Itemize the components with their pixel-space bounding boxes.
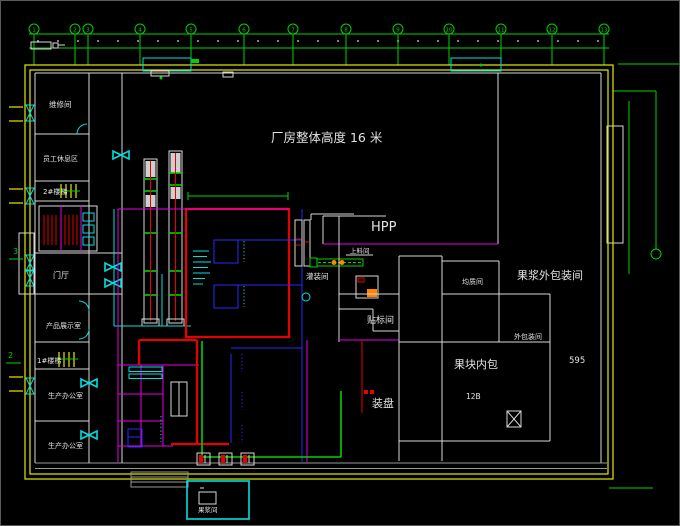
room-label-hpp: HPP xyxy=(371,220,397,235)
floor-plan-canvas: 1 2 3 4 5 6 7 8 9 10 11 12 13 xyxy=(1,1,680,526)
grid-bubble-label: 8 xyxy=(344,27,348,33)
grid-bubble-label: 10 xyxy=(446,27,453,33)
grid-bubble-label: 2 xyxy=(73,27,77,33)
drawing-title: 厂房整体高度 16 米 xyxy=(271,130,383,145)
process-line-bracket xyxy=(114,209,191,326)
text-labels: 厂房整体高度 16 米 HPP 维修间 员工休息区 2#楼梯 门厅 产品展示室 … xyxy=(37,99,585,514)
room-label-tray: 装盘 xyxy=(372,396,394,410)
grid-bubble-label: 5 xyxy=(189,27,193,33)
door-swings xyxy=(77,124,129,439)
hpp-zone-walls xyxy=(323,73,498,244)
grid-bubble-label: 11 xyxy=(498,27,505,33)
hall-partition-lines xyxy=(118,209,307,462)
grid-bubble-label: 6 xyxy=(242,27,246,33)
section-marker-3: 3 xyxy=(13,247,18,256)
section-marker-2: 2 xyxy=(8,351,13,360)
grid-bubble-label: 13 xyxy=(601,27,608,33)
grid-bubble-label: 1 xyxy=(32,27,36,33)
room-label-labeling: 贴标间 xyxy=(367,314,394,326)
room-label-feeding: 上料间 xyxy=(350,246,370,255)
grid-bubble-label: 7 xyxy=(291,27,295,33)
room-label-filling: 灌装间 xyxy=(306,271,329,281)
room-label-pulp-outer-pack: 果浆外包装间 xyxy=(517,268,583,282)
process-line-b xyxy=(167,151,184,326)
grid-bubbles: 1 2 3 4 5 6 7 8 9 10 11 12 13 xyxy=(29,24,609,34)
right-dimension-lines xyxy=(607,64,679,488)
room-label-stair1: 1#楼梯 xyxy=(37,356,61,365)
room-label-maintenance: 维修间 xyxy=(49,99,72,109)
room-label-product-display: 产品展示室 xyxy=(46,321,81,330)
grid-bubble-label: 9 xyxy=(396,27,400,33)
filling-line-machines xyxy=(295,214,378,301)
process-line-a xyxy=(142,159,159,326)
room-label-homogenize: 均质间 xyxy=(462,277,483,286)
cad-floor-plan-screenshot: 1 2 3 4 5 6 7 8 9 10 11 12 13 xyxy=(0,0,680,526)
labeling-zone-walls xyxy=(339,216,399,413)
grid-dimension-lines xyxy=(29,34,609,65)
annotation-12b: 12B xyxy=(466,392,481,401)
room-label-pulp-box: 果浆间 xyxy=(198,505,218,514)
annotation-595: 595 xyxy=(569,356,585,366)
room-label-chunk-inner-pack: 果块内包 xyxy=(454,357,498,371)
blue-conveyors xyxy=(231,348,302,443)
green-piping xyxy=(202,341,341,457)
room-label-outer-pack: 外包装间 xyxy=(514,332,542,341)
detached-room-box xyxy=(187,481,249,519)
room-label-lobby: 门厅 xyxy=(53,270,69,280)
grid-bubble-label: 4 xyxy=(138,27,142,33)
room-label-stair2: 2#楼梯 xyxy=(43,187,67,196)
left-rooms-walls xyxy=(35,73,122,463)
washroom-block xyxy=(39,206,97,251)
room-label-staff-rest: 员工休息区 xyxy=(43,154,78,163)
room-label-office2: 生产办公室 xyxy=(48,441,83,450)
entrance-canopies xyxy=(143,58,501,80)
grid-bubble-label: 12 xyxy=(549,27,556,33)
lower-pack-area xyxy=(118,340,229,447)
grid-bubble-label: 3 xyxy=(86,27,90,33)
red-room xyxy=(186,192,302,337)
room-label-office1: 生产办公室 xyxy=(48,391,83,400)
